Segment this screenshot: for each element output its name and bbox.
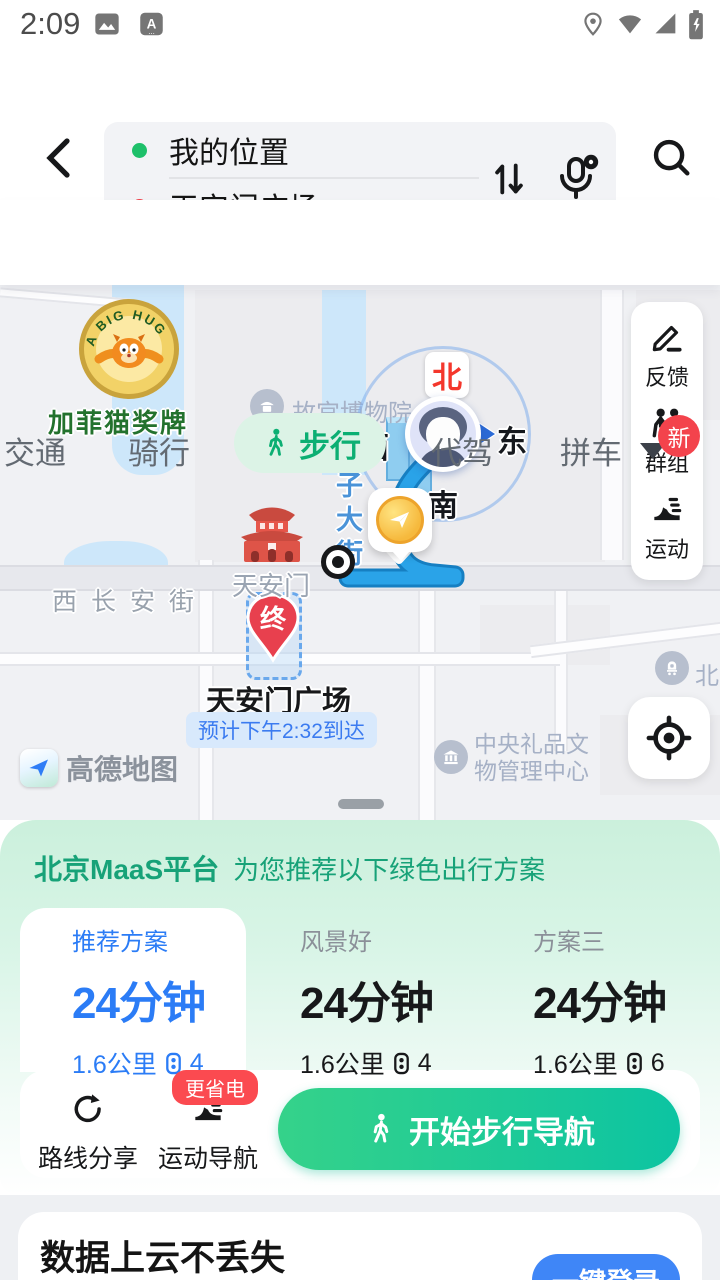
cell-signal-icon (652, 10, 680, 38)
share-route-icon (69, 1090, 107, 1128)
gift-center-icon (434, 740, 468, 774)
sheet-drag-handle[interactable] (338, 799, 384, 809)
destination-pin[interactable]: 终 (244, 593, 302, 663)
search-icon (648, 134, 694, 180)
tab-walking-active[interactable]: 步行 (234, 413, 386, 473)
plan-recommended[interactable]: 推荐方案 24分钟 1.6公里 4 (72, 922, 205, 1081)
plan-scenic[interactable]: 风景好 24分钟 1.6公里 4 (300, 922, 433, 1081)
plan-three[interactable]: 方案三 24分钟 1.6公里 6 (533, 922, 666, 1081)
login-promo-title: 数据上云不丢失 (40, 1230, 285, 1280)
origin-text: 我的位置 (169, 128, 289, 172)
share-route-button[interactable]: 路线分享 (30, 1090, 146, 1175)
running-shoe-icon (647, 490, 687, 528)
tab-walking-label: 步行 (299, 421, 361, 466)
swap-endpoints-icon[interactable] (486, 154, 532, 204)
tiananmen-gate-icon (235, 503, 309, 565)
screenshot-icon (92, 10, 122, 38)
eta-pill: 预计下午2:32到达 (186, 712, 377, 748)
new-badge: 新 (658, 415, 700, 457)
coin-icon (376, 496, 424, 544)
route-header: 我的位置 天安门广场 途经点 (0, 48, 720, 200)
railway-station-icon (655, 651, 689, 685)
railway-station-label: 北京 (695, 656, 720, 691)
walking-person-icon (363, 1112, 397, 1146)
route-end-dot (321, 545, 355, 579)
amap-attribution: 高德地图 (20, 748, 178, 788)
origin-dot-icon (132, 143, 147, 158)
origin-field[interactable]: 我的位置 (132, 122, 289, 178)
traffic-light-icon (624, 1052, 645, 1075)
traffic-light-icon (391, 1052, 412, 1075)
back-button[interactable] (36, 134, 84, 182)
clock: 2:09 (20, 6, 80, 42)
maas-subtitle: 为您推荐以下绿色出行方案 (233, 855, 545, 885)
wifi-icon (616, 10, 644, 38)
destination-pin-label: 终 (260, 604, 287, 634)
tab-cycling[interactable]: 骑行 (128, 428, 190, 473)
maas-title: 北京MaaS平台 (34, 854, 219, 885)
crosshair-icon (646, 715, 692, 761)
pencil-icon (648, 318, 686, 356)
travel-mode-tabs: 交通 骑行 步行 代驾 拼车 新 (0, 200, 720, 285)
feedback-button[interactable]: 反馈 (645, 318, 689, 392)
map-canvas[interactable]: A BIG HUG 加菲猫奖牌 故宫博物院 北 东 西 南 池子大街 (0, 285, 720, 820)
recenter-button[interactable] (628, 697, 710, 779)
svg-text:...: ... (148, 27, 155, 36)
power-saving-badge: 更省电 (172, 1070, 258, 1105)
start-walk-nav-button[interactable]: 开始步行导航 (278, 1088, 680, 1170)
maas-banner: 北京MaaS平台为您推荐以下绿色出行方案 (34, 848, 545, 888)
login-promo-card: 数据上云不丢失 一键登录 (18, 1212, 702, 1280)
autonavi-notification-icon: A... (138, 10, 165, 38)
tab-carpool[interactable]: 拼车 (560, 428, 622, 473)
amap-logo-text: 高德地图 (66, 748, 178, 788)
gift-center-label[interactable]: 中央礼品文 物管理中心 (474, 731, 589, 785)
amap-logo-icon (20, 749, 58, 787)
walk-route-screen: 2:09 A... 我的位置 天安门广场 途经点 交 (0, 0, 720, 1280)
walking-person-icon (259, 427, 291, 459)
tab-transit[interactable]: 交通 (4, 428, 66, 473)
voice-input-icon[interactable] (550, 152, 602, 206)
reward-coin-bubble[interactable] (368, 488, 432, 552)
route-plans-sheet: 北京MaaS平台为您推荐以下绿色出行方案 推荐方案 24分钟 1.6公里 4 风… (0, 820, 720, 1195)
sport-button[interactable]: 运动 (645, 490, 689, 564)
status-bar: 2:09 A... (0, 0, 720, 48)
battery-icon (688, 10, 704, 40)
login-promo-section: 数据上云不丢失 一键登录 (0, 1195, 720, 1280)
changan-avenue-label: 西长安街 (52, 582, 208, 618)
one-tap-login-button[interactable]: 一键登录 (532, 1254, 680, 1280)
location-active-icon (580, 10, 606, 38)
tab-chauffeur[interactable]: 代驾 (431, 428, 493, 473)
tiananmen-label[interactable]: 天安门 (232, 566, 310, 603)
